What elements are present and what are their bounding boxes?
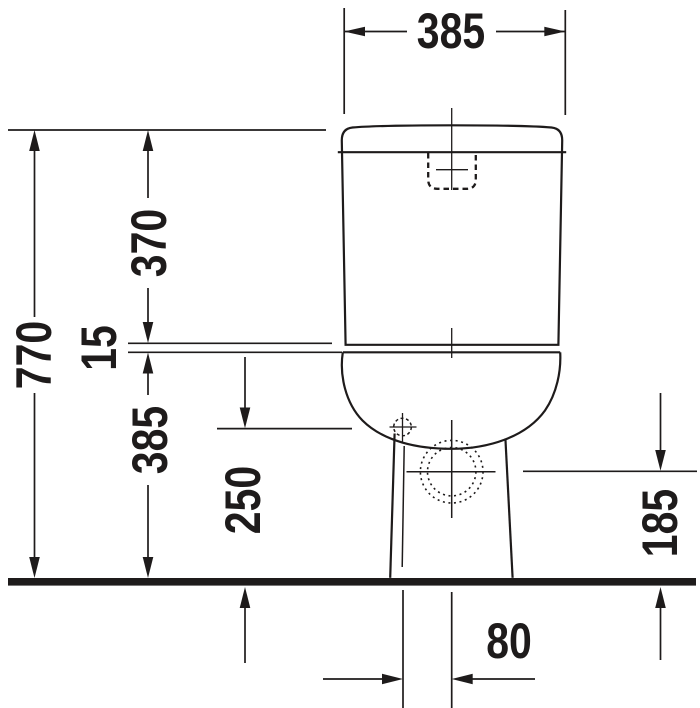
- pedestal-left-edge: [390, 434, 394, 578]
- dim-label-outlet-offset: 80: [486, 613, 532, 669]
- dim-seat-gap: 15: [71, 325, 127, 371]
- dim-label-height-total: 770: [6, 321, 62, 389]
- dim-bowl-height: 385: [122, 353, 178, 579]
- technical-drawing-canvas: 385 770 370 15 385 250: [0, 0, 700, 708]
- floor-line: [8, 578, 696, 586]
- arrow-down-icon: [240, 408, 251, 429]
- toilet-dimension-drawing: 385 770 370 15 385 250: [0, 0, 700, 708]
- dim-label-fixing-height: 250: [215, 466, 271, 534]
- arrow-up-icon: [655, 587, 666, 608]
- hidden-details: [390, 108, 496, 518]
- arrow-left-icon: [344, 27, 365, 36]
- dim-label-seat-gap: 15: [71, 325, 127, 371]
- arrow-up-icon: [143, 353, 154, 374]
- arrow-down-icon: [655, 450, 666, 471]
- dim-outlet-height: 185: [632, 393, 688, 660]
- dim-label-outlet-height: 185: [632, 489, 688, 557]
- arrow-up-icon: [143, 130, 154, 151]
- arrow-down-icon: [143, 322, 154, 343]
- arrow-down-icon: [143, 557, 154, 578]
- dim-height-total: 770: [6, 130, 62, 578]
- arrow-right-icon: [544, 27, 565, 36]
- arrow-down-icon: [29, 557, 40, 578]
- dim-label-tank-height: 370: [121, 209, 177, 277]
- dim-fixing-height: 250: [215, 357, 271, 663]
- pedestal-inner-line: [402, 446, 404, 567]
- arrow-up-icon: [29, 130, 40, 151]
- dim-outlet-offset: 80: [323, 613, 535, 684]
- dim-label-width-top: 385: [417, 3, 485, 59]
- dim-tank-height: 370: [121, 130, 177, 343]
- arrow-up-icon: [240, 587, 251, 608]
- dim-label-bowl-height: 385: [122, 406, 178, 474]
- arrow-right-icon: [382, 674, 403, 685]
- arrow-left-icon: [452, 674, 473, 685]
- pedestal-right-edge: [505, 439, 512, 578]
- dim-width-top: 385: [344, 3, 565, 59]
